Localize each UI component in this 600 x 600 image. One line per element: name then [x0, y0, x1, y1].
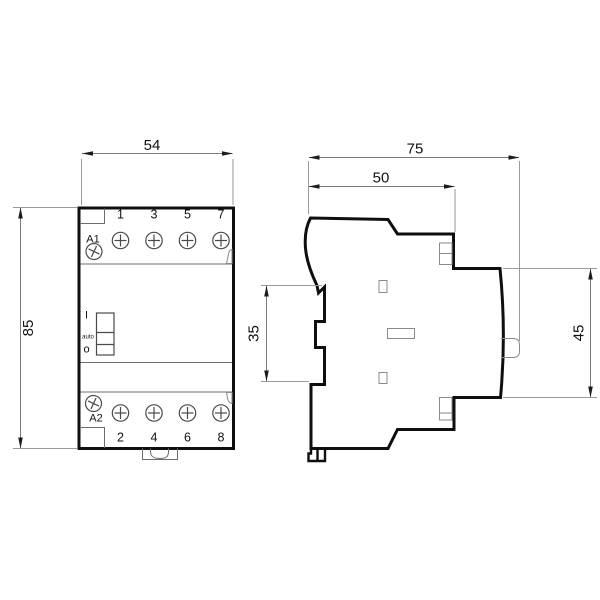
switch-label-auto: auto [82, 335, 94, 341]
screw-coil-a2 [83, 393, 104, 414]
screw-terminal-5 [179, 232, 195, 248]
contactor-technical-drawing: I auto o A1 A2 1 3 5 7 [0, 0, 600, 600]
terminal-number-2: 2 [117, 431, 124, 445]
bottom-left-corner-box [80, 428, 105, 449]
side-din-foot [309, 449, 326, 462]
dim-side-back-height-value: 45 [571, 325, 588, 342]
dim-side-depth-total-value: 75 [407, 141, 424, 158]
coil-terminal-a1: A1 [83, 234, 104, 263]
switch-label-on: I [85, 310, 88, 322]
top-left-corner-box [80, 209, 105, 224]
screw-terminal-4 [146, 405, 162, 421]
screw-terminal-8 [213, 405, 229, 421]
selector-switch: I auto o [82, 310, 114, 356]
dim-front-width-value: 54 [144, 137, 161, 154]
dimensions: 54 85 75 50 [13, 137, 597, 449]
terminal-number-1: 1 [117, 208, 124, 222]
front-view: I auto o A1 A2 1 3 5 7 [79, 208, 234, 460]
side-top-terminal-block [440, 243, 453, 265]
dim-front-height: 85 [13, 208, 77, 449]
terminal-number-3: 3 [151, 208, 158, 222]
screw-terminal-1 [112, 232, 128, 248]
coil-terminal-a2-label: A2 [89, 413, 102, 425]
screw-terminal-2 [112, 405, 128, 421]
dim-front-width: 54 [82, 137, 234, 205]
screw-terminal-7 [213, 232, 229, 248]
front-din-clip [143, 449, 178, 460]
dim-side-depth-upper: 50 [309, 170, 456, 233]
side-detail-slot-upper [379, 281, 387, 293]
top-right-flag [227, 249, 233, 263]
side-view [305, 218, 519, 461]
dim-side-depth-upper-value: 50 [373, 170, 390, 187]
switch-slider [97, 313, 115, 355]
bottom-right-flag [227, 393, 233, 404]
screw-terminal-6 [179, 405, 195, 421]
side-detail-slot-lower [379, 373, 387, 384]
switch-label-off: o [83, 344, 89, 356]
screw-terminal-3 [146, 232, 162, 248]
dim-front-height-value: 85 [20, 320, 37, 337]
side-profile-outline [305, 218, 503, 449]
terminal-number-6: 6 [184, 431, 191, 445]
terminal-number-4: 4 [151, 431, 158, 445]
coil-terminal-a2: A2 [83, 393, 104, 425]
terminal-number-5: 5 [184, 208, 191, 222]
dim-din-rail: 35 [246, 286, 323, 382]
dim-din-rail-value: 35 [246, 325, 263, 342]
dim-side-depth-total: 75 [309, 141, 520, 342]
side-bottom-terminal-block [440, 398, 453, 421]
terminal-number-8: 8 [218, 431, 225, 445]
terminal-number-7: 7 [218, 208, 225, 222]
side-detail-slot-middle [388, 329, 415, 339]
dim-side-back-height: 45 [503, 269, 597, 398]
drawing-canvas: I auto o A1 A2 1 3 5 7 [0, 0, 600, 600]
